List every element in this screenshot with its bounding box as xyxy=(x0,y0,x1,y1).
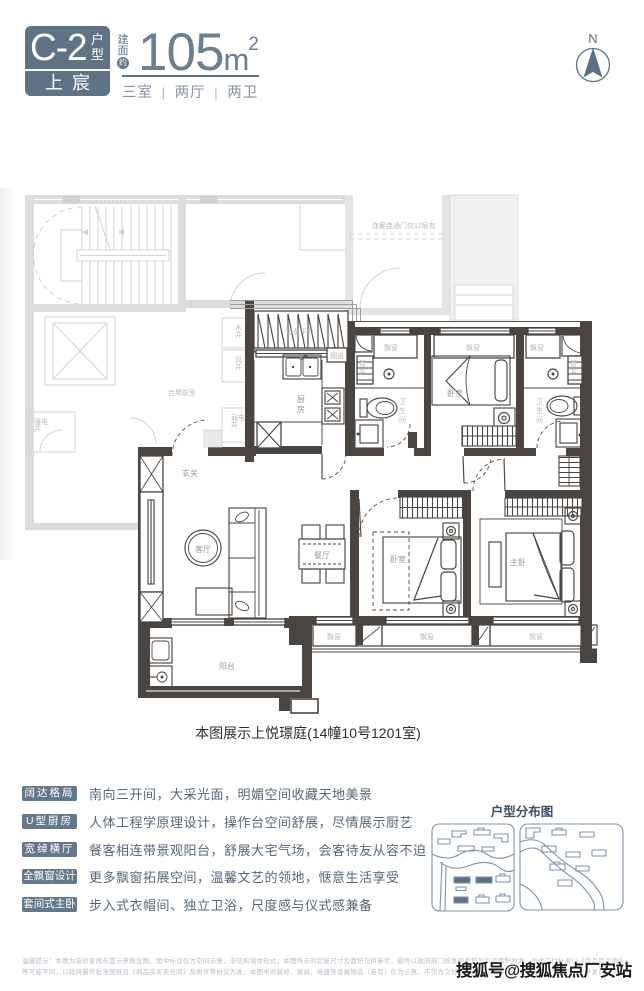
svg-text:井: 井 xyxy=(235,362,242,371)
svg-text:井: 井 xyxy=(235,330,242,339)
svg-text:强电: 强电 xyxy=(34,417,48,426)
svg-text:飘窗: 飘窗 xyxy=(327,632,341,641)
svg-text:卧室: 卧室 xyxy=(447,388,463,398)
svg-text:管: 管 xyxy=(359,359,366,368)
svg-text:飘窗: 飘窗 xyxy=(466,343,480,352)
svg-text:弱电: 弱电 xyxy=(231,413,245,422)
svg-text:玄关: 玄关 xyxy=(182,468,198,478)
svg-text:生: 生 xyxy=(536,406,543,415)
svg-text:合用前室: 合用前室 xyxy=(168,388,196,397)
svg-text:设备平台: 设备平台 xyxy=(286,327,314,336)
svg-text:飘窗: 飘窗 xyxy=(384,343,398,352)
svg-text:烟道: 烟道 xyxy=(330,351,344,360)
svg-text:飘窗: 飘窗 xyxy=(420,632,434,641)
svg-text:餐厅: 餐厅 xyxy=(314,551,330,560)
svg-text:卫: 卫 xyxy=(399,398,406,406)
svg-text:飘窗: 飘窗 xyxy=(530,343,544,352)
svg-text:间: 间 xyxy=(536,416,543,424)
svg-text:卧室: 卧室 xyxy=(390,554,406,564)
svg-text:阳台: 阳台 xyxy=(219,661,235,671)
svg-text:厨: 厨 xyxy=(297,395,305,404)
svg-text:生: 生 xyxy=(399,406,406,415)
svg-text:连廊连通门仅12层有: 连廊连通门仅12层有 xyxy=(372,221,436,230)
svg-text:客厅: 客厅 xyxy=(195,544,211,554)
svg-text:水: 水 xyxy=(235,323,242,332)
svg-text:间: 间 xyxy=(399,416,406,424)
svg-text:风: 风 xyxy=(235,356,242,364)
svg-text:井: 井 xyxy=(359,367,366,376)
svg-text:N: N xyxy=(588,31,597,46)
svg-text:卫: 卫 xyxy=(536,398,543,406)
svg-text:井: 井 xyxy=(34,424,41,433)
svg-text:管: 管 xyxy=(570,359,577,368)
svg-text:主卧: 主卧 xyxy=(510,557,526,567)
svg-text:飘窗: 飘窗 xyxy=(529,632,543,641)
svg-text:井: 井 xyxy=(570,367,577,376)
svg-text:井: 井 xyxy=(231,420,238,429)
svg-text:房: 房 xyxy=(297,404,305,414)
